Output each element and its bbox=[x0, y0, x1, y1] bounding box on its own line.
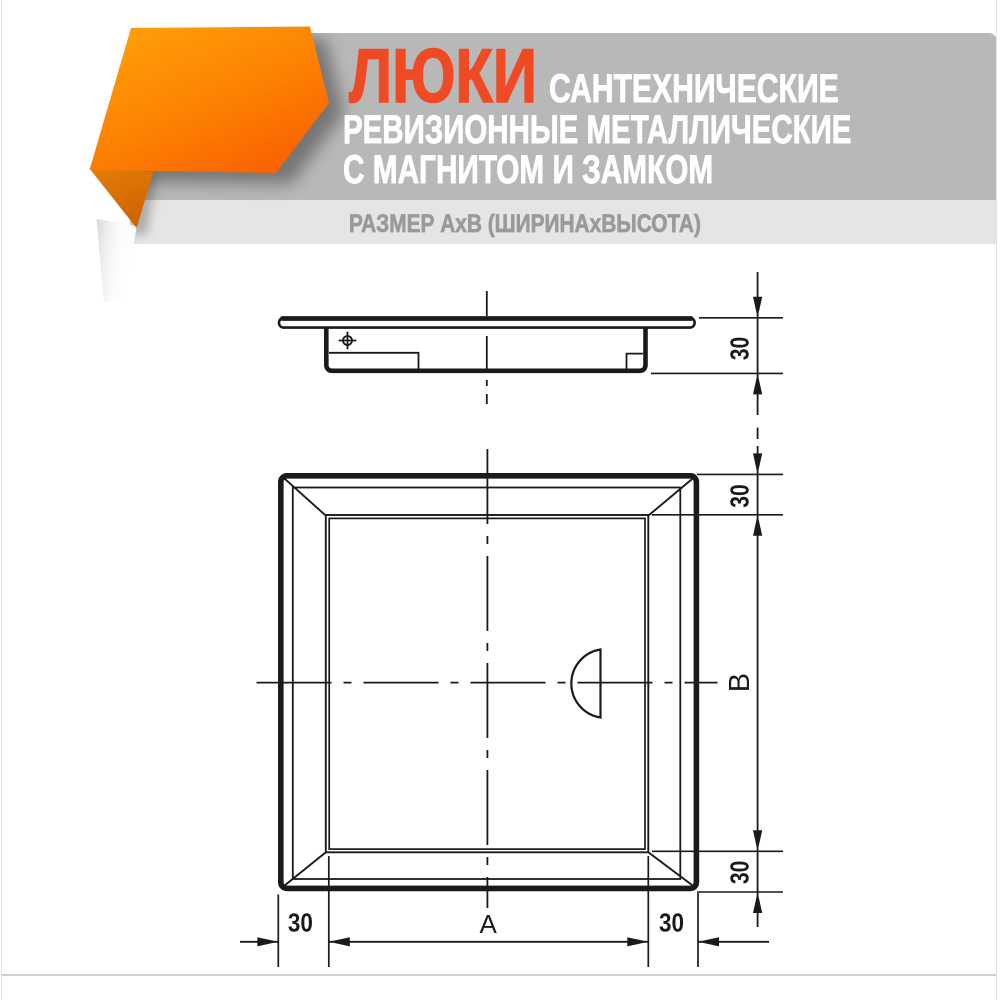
svg-text:30: 30 bbox=[724, 484, 754, 508]
svg-text:30: 30 bbox=[659, 908, 684, 938]
svg-text:30: 30 bbox=[724, 861, 754, 885]
svg-text:30: 30 bbox=[724, 337, 754, 361]
svg-text:В: В bbox=[724, 673, 756, 692]
svg-text:30: 30 bbox=[288, 908, 313, 938]
svg-text:А: А bbox=[480, 909, 498, 939]
